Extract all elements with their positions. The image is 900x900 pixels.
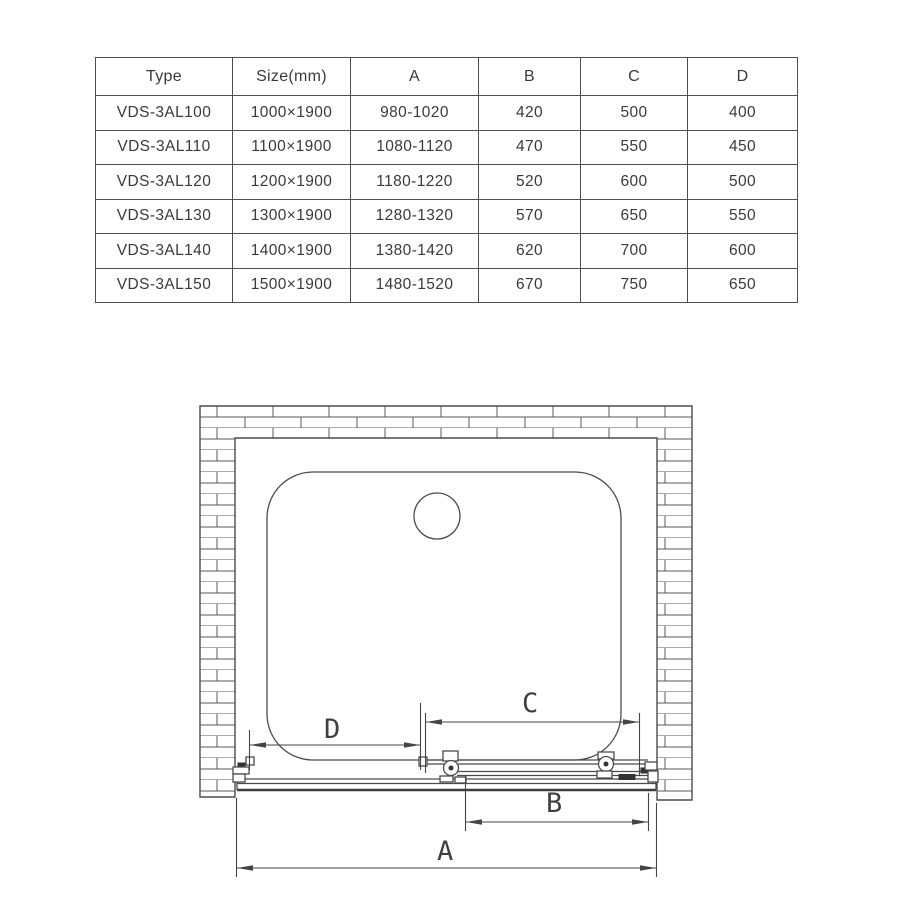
drain-circle [414,493,460,539]
door-handle [619,775,635,780]
installation-diagram: D C B A [0,0,900,900]
shower-tray [267,472,621,760]
dimension-label-d: D [324,714,340,745]
dimension-a: A [237,798,657,877]
left-wall-bracket [233,757,254,782]
right-roller [597,752,614,778]
brick-wall [200,406,692,800]
shower-door-spec-sheet: TypeSize(mm)ABCD VDS-3AL1001000×1900980-… [0,0,900,900]
left-roller [440,751,466,783]
dimension-b: B [466,776,649,831]
dimension-label-b: B [546,788,562,819]
sliding-door-panel [457,772,650,780]
dimension-label-a: A [437,836,453,867]
dimension-label-c: C [522,688,538,719]
